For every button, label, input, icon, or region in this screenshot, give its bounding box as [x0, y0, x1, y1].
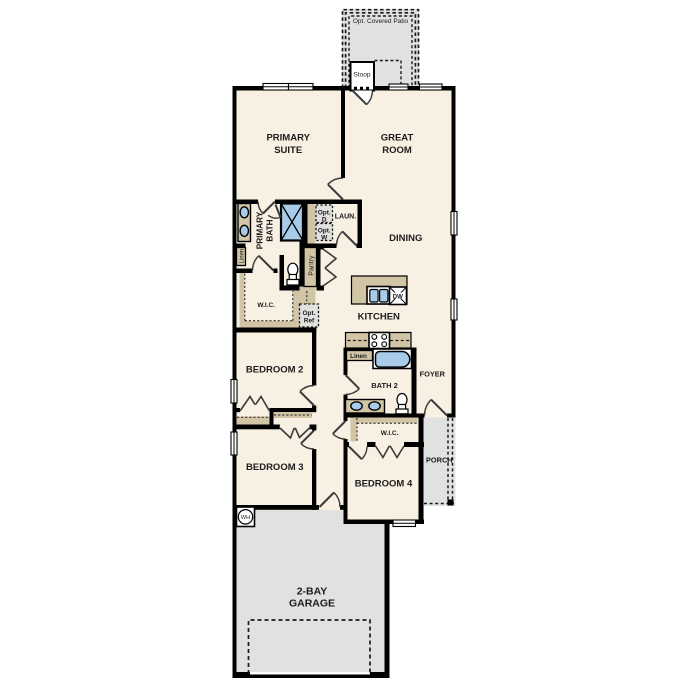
svg-text:SUITE: SUITE [274, 145, 302, 156]
svg-text:W.I.C.: W.I.C. [257, 302, 275, 309]
svg-text:LAUN.: LAUN. [335, 214, 356, 221]
svg-text:DINING: DINING [389, 233, 422, 244]
svg-text:Linen: Linen [240, 249, 246, 264]
svg-text:FOYER: FOYER [420, 369, 446, 378]
svg-text:Opt.: Opt. [318, 228, 331, 235]
svg-text:D: D [322, 217, 327, 224]
svg-text:GARAGE: GARAGE [289, 598, 335, 610]
svg-text:BEDROOM 4: BEDROOM 4 [355, 478, 413, 489]
svg-text:GREAT: GREAT [381, 132, 414, 143]
svg-text:2-BAY: 2-BAY [297, 586, 328, 598]
svg-text:BEDROOM 3: BEDROOM 3 [246, 462, 304, 473]
svg-text:W.I.C.: W.I.C. [381, 430, 399, 437]
svg-text:Opt.: Opt. [303, 310, 316, 317]
svg-text:ROOM: ROOM [382, 145, 412, 156]
svg-text:W: W [321, 235, 328, 242]
svg-text:Opt. Covered Patio: Opt. Covered Patio [353, 18, 409, 25]
svg-text:Stoop: Stoop [354, 71, 371, 78]
svg-text:BATH: BATH [266, 219, 275, 241]
svg-text:KITCHEN: KITCHEN [358, 312, 400, 323]
svg-text:Ref: Ref [304, 318, 315, 325]
svg-text:Pantry: Pantry [308, 255, 315, 276]
svg-text:Linen: Linen [350, 353, 367, 360]
svg-text:PRIMARY: PRIMARY [266, 132, 310, 143]
svg-text:PRIMARY: PRIMARY [256, 211, 265, 249]
svg-text:Opt.: Opt. [318, 210, 331, 217]
svg-text:BEDROOM 2: BEDROOM 2 [246, 364, 304, 375]
svg-text:BATH 2: BATH 2 [371, 381, 398, 390]
svg-text:WH: WH [241, 515, 250, 521]
svg-text:DW: DW [393, 294, 403, 300]
svg-text:PORCH: PORCH [426, 456, 453, 465]
